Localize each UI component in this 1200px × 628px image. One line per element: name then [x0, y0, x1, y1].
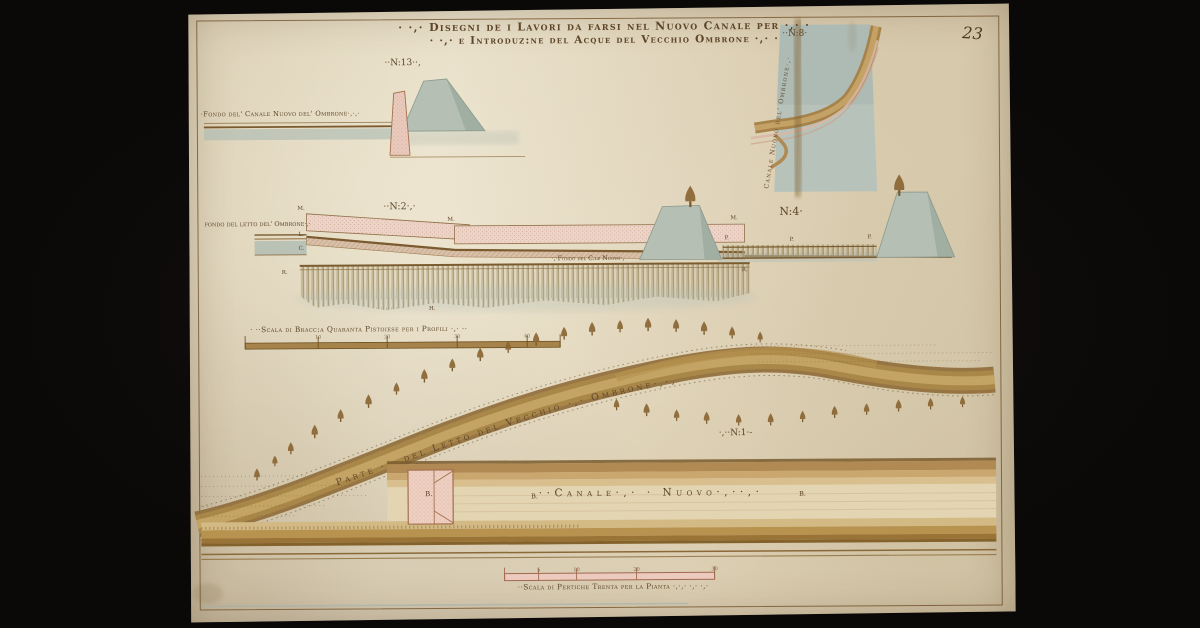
n4-marker: P.: [868, 235, 872, 241]
n4-marker: P.: [725, 236, 729, 242]
figure-n2-number: ··N:2·,·: [383, 202, 415, 212]
n2-marker: M.: [730, 216, 737, 222]
sluice-marker: B.: [425, 491, 432, 498]
figure-n1-number: ·,··N:1·-: [719, 429, 753, 439]
page-number: 23: [962, 25, 983, 43]
profiles-scale-label: · ··Scala di Bracc:a Quaranta Pistoiese …: [250, 325, 467, 334]
n4-marker: P.: [790, 238, 794, 244]
canal-nuovo-label: ··Canale·,· · Nuovo·,··,·: [521, 487, 781, 500]
n2-marker: H.: [429, 307, 436, 313]
n13-bed-label: ·Fondo del' Canale Nuovo del' Ombrone·,·…: [201, 110, 360, 118]
scan-background: Canale Nuovo del' Ombrone·,·: [0, 0, 1200, 628]
n2-right-bed-label: ·,·Fondo del C.le Nuovo·,: [552, 256, 625, 263]
n2-left-bed-label: fondo del letto del' Ombrone·,·: [204, 221, 310, 228]
n2-marker: C.: [299, 247, 305, 253]
n2-marker: M.: [297, 207, 304, 213]
canal-marker: B.: [531, 493, 538, 500]
n2-marker: R.: [742, 268, 748, 274]
figure-n8-number: ··N:8·: [782, 30, 807, 40]
n2-marker: L.: [299, 233, 304, 239]
n2-marker: M.: [447, 218, 454, 224]
drawing-sheet: Canale Nuovo del' Ombrone·,·: [184, 3, 1016, 622]
canal-marker: B.: [799, 491, 806, 498]
plan-scale-label: ··Scala di Pertiche Trenta per la Pianta…: [496, 582, 731, 591]
labels-layer: · ·,· Disegni de i Lavori da farsi nel N…: [184, 3, 1016, 622]
figure-n13-number: ··N:13··,: [384, 59, 420, 69]
n2-marker: R.: [282, 271, 288, 277]
figure-n4-number: N:4·: [779, 206, 803, 218]
